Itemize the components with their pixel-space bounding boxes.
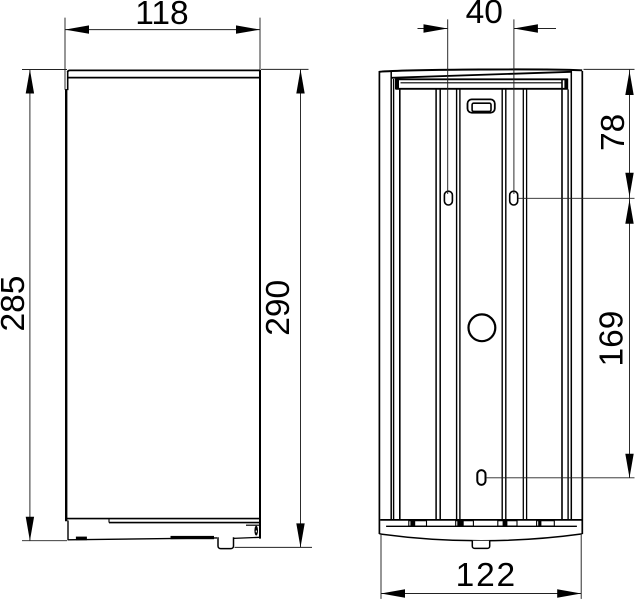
svg-text:285: 285 (0, 276, 32, 332)
svg-text:290: 290 (260, 280, 297, 336)
svg-text:118: 118 (135, 0, 188, 32)
svg-text:78: 78 (595, 114, 632, 151)
svg-text:122: 122 (456, 557, 517, 594)
svg-text:169: 169 (594, 311, 631, 367)
svg-text:40: 40 (466, 0, 503, 31)
